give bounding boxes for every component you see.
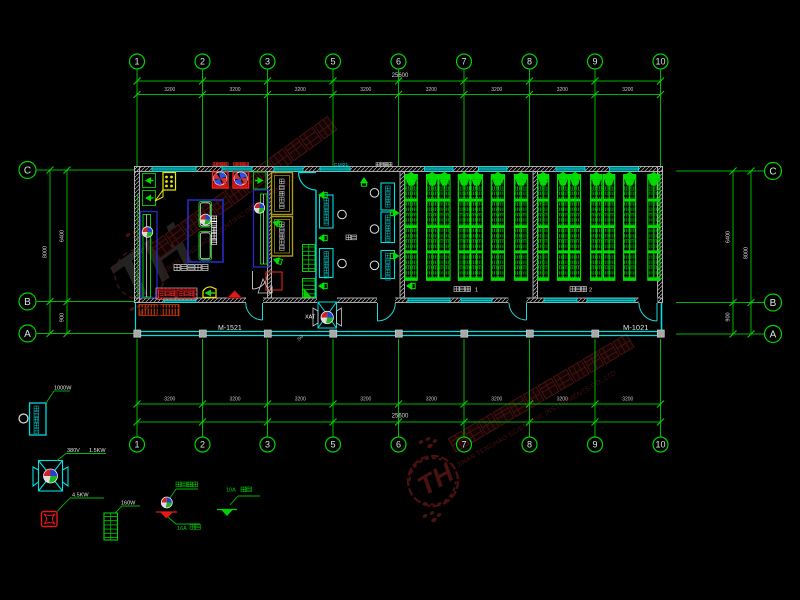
svg-text:3: 3 xyxy=(265,57,270,67)
svg-text:3200: 3200 xyxy=(360,397,371,403)
svg-text:6: 6 xyxy=(396,440,401,450)
svg-text:M-1521: M-1521 xyxy=(218,325,242,332)
svg-text:A: A xyxy=(24,329,31,340)
svg-text:2: 2 xyxy=(200,440,205,450)
svg-text:16A: 16A xyxy=(177,526,187,532)
svg-text:3200: 3200 xyxy=(164,397,175,403)
svg-text:6: 6 xyxy=(396,57,401,67)
svg-text:8: 8 xyxy=(527,57,532,67)
svg-text:3200: 3200 xyxy=(229,87,240,93)
svg-text:10: 10 xyxy=(655,57,665,67)
svg-text:7: 7 xyxy=(461,57,466,67)
svg-text:XAT: XAT xyxy=(305,315,316,321)
svg-text:3200: 3200 xyxy=(295,87,306,93)
svg-text:4.5KW: 4.5KW xyxy=(72,493,89,499)
svg-text:MS: MS xyxy=(269,286,274,293)
svg-text:10: 10 xyxy=(655,440,665,450)
svg-text:6400: 6400 xyxy=(60,230,66,242)
svg-text:1.5KW: 1.5KW xyxy=(89,448,106,454)
svg-text:25600: 25600 xyxy=(392,414,409,420)
svg-text:M-1021: M-1021 xyxy=(623,323,648,332)
svg-text:3: 3 xyxy=(265,440,270,450)
svg-text:5: 5 xyxy=(330,57,335,67)
svg-text:3200: 3200 xyxy=(491,87,502,93)
svg-text:3200: 3200 xyxy=(229,397,240,403)
svg-text:C: C xyxy=(769,167,776,178)
svg-text:3200: 3200 xyxy=(622,397,633,403)
svg-text:3200: 3200 xyxy=(295,397,306,403)
svg-text:6400: 6400 xyxy=(726,231,732,243)
svg-text:1: 1 xyxy=(134,440,139,450)
svg-text:1000W: 1000W xyxy=(54,386,72,392)
svg-text:2: 2 xyxy=(200,57,205,67)
svg-text:B: B xyxy=(770,298,777,309)
svg-text:7: 7 xyxy=(461,440,466,450)
svg-text:8000: 8000 xyxy=(43,246,49,258)
svg-text:160W: 160W xyxy=(121,501,136,507)
svg-text:900: 900 xyxy=(60,313,66,322)
svg-text:3200: 3200 xyxy=(164,87,175,93)
svg-text:25600: 25600 xyxy=(392,73,409,79)
svg-text:A: A xyxy=(770,330,777,341)
svg-text:9: 9 xyxy=(592,57,597,67)
svg-text:8: 8 xyxy=(527,440,532,450)
svg-text:3200: 3200 xyxy=(557,87,568,93)
svg-text:C1821: C1821 xyxy=(334,162,348,168)
svg-text:900: 900 xyxy=(726,312,732,321)
svg-text:5: 5 xyxy=(330,440,335,450)
svg-text:1: 1 xyxy=(134,57,139,67)
svg-text:3200: 3200 xyxy=(426,87,437,93)
svg-text:3200: 3200 xyxy=(360,87,371,93)
svg-text:8000: 8000 xyxy=(744,247,750,259)
svg-text:10A: 10A xyxy=(226,488,236,494)
svg-text:380V: 380V xyxy=(67,448,80,454)
svg-text:3200: 3200 xyxy=(426,397,437,403)
svg-text:3200: 3200 xyxy=(622,87,633,93)
svg-text:1: 1 xyxy=(475,288,478,294)
svg-text:B: B xyxy=(24,297,31,308)
svg-text:2: 2 xyxy=(589,288,592,294)
svg-text:3200: 3200 xyxy=(557,397,568,403)
svg-text:3200: 3200 xyxy=(491,397,502,403)
svg-text:9: 9 xyxy=(592,440,597,450)
svg-text:C: C xyxy=(24,166,31,177)
